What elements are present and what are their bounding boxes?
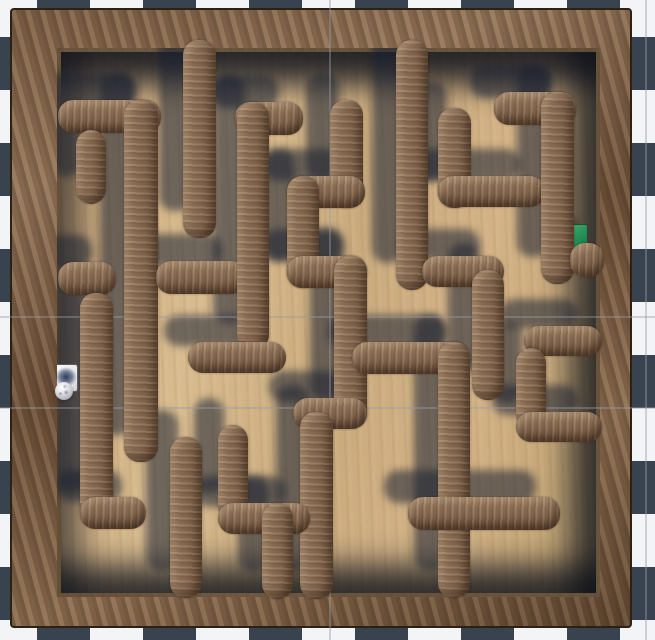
- maze-wall-tr-elbow-h: [438, 176, 545, 207]
- maze-wall-bridge-v: [438, 342, 470, 598]
- maze-wall-west-long-v: [124, 100, 158, 462]
- maze-wall-top-c2-v: [183, 40, 216, 238]
- maze-wall-ball-l-v: [80, 293, 113, 519]
- maze-wall-goal-j-h: [570, 243, 604, 277]
- maze-wall-lb-v: [170, 437, 202, 598]
- maze-wall-cl-long-v: [237, 102, 269, 350]
- maze-wall-zig-v2: [262, 503, 293, 599]
- game-scene: [0, 0, 655, 640]
- player-ball[interactable]: [55, 382, 73, 400]
- maze-wall-rt-frame-v: [396, 40, 428, 290]
- maze-wall-west-e-h: [58, 262, 116, 295]
- maze-wall-snake-v4: [300, 412, 333, 599]
- maze-wall-nw-stub-v: [76, 130, 106, 204]
- grid-line-vertical: [645, 0, 647, 640]
- maze-wall-mid-h: [408, 497, 560, 530]
- maze-wall-rt-stub-v: [472, 270, 504, 400]
- maze-wall-cl-t-h: [188, 342, 286, 373]
- maze-wall-ball-l-h: [80, 497, 146, 529]
- maze-wall-goal-v: [541, 92, 574, 284]
- maze-wall-pocket-bot-h: [516, 412, 602, 442]
- maze-wall-west-g-h: [156, 261, 246, 294]
